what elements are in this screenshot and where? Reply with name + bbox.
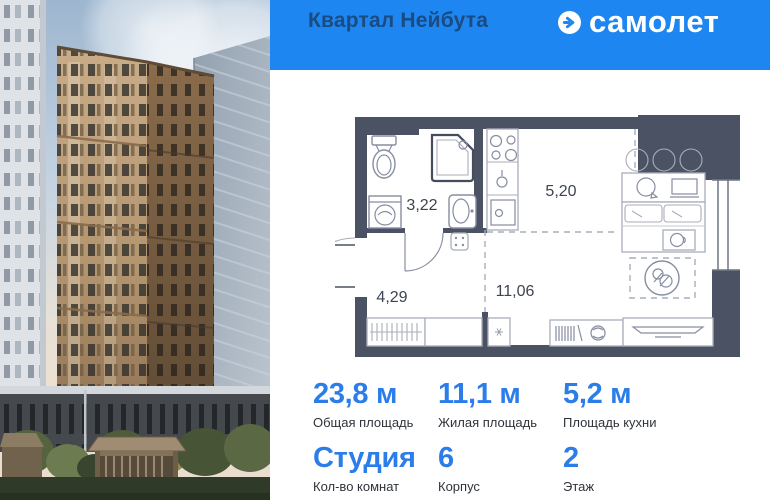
header: Квартал Нейбута самолет <box>270 0 770 70</box>
sideboard-icon <box>550 320 623 346</box>
hatch-box-icon <box>488 318 510 346</box>
tv-stand-icon <box>623 318 713 346</box>
bathroom-area-label: 3,22 <box>406 197 437 214</box>
bathroom-door-arc <box>405 233 443 271</box>
bath-sink-icon <box>449 195 476 228</box>
dining-table-icon <box>645 261 679 295</box>
bed-icon <box>622 202 705 252</box>
project-title: Квартал Нейбута <box>308 9 488 33</box>
stat-label: Площадь кухни <box>563 415 723 430</box>
living-area-label: 11,06 <box>496 283 535 300</box>
hallway-area-label: 4,29 <box>376 289 407 306</box>
kitchen-area-label: 5,20 <box>545 183 576 200</box>
wardrobe-icon <box>367 318 482 346</box>
window-opening <box>712 180 740 270</box>
stat-floor: 2 Этаж <box>563 443 723 494</box>
floor-plan: 3,22 5,20 4,29 11,06 <box>335 112 742 360</box>
hedge <box>0 477 270 500</box>
shower-icon <box>432 135 473 181</box>
desk-icon <box>622 173 705 202</box>
listing-card: Квартал Нейбута самолет <box>0 0 770 500</box>
main-tower <box>57 47 214 424</box>
entrance-door-arc <box>335 238 355 297</box>
samolet-logo-icon <box>558 11 581 34</box>
toilet-icon <box>372 136 396 178</box>
neighbor-building-left <box>0 0 46 438</box>
stat-label: Этаж <box>563 479 723 494</box>
washing-machine-icon <box>369 196 401 228</box>
brand-name: самолет <box>589 9 719 35</box>
stat-value: 2 <box>563 443 723 473</box>
stool-icon <box>451 233 468 250</box>
samolet-logo[interactable]: самолет <box>558 8 719 36</box>
stat-kitchen-area: 5,2 м Площадь кухни <box>563 379 723 430</box>
building-photo <box>0 0 270 500</box>
stat-value: 5,2 м <box>563 379 723 409</box>
